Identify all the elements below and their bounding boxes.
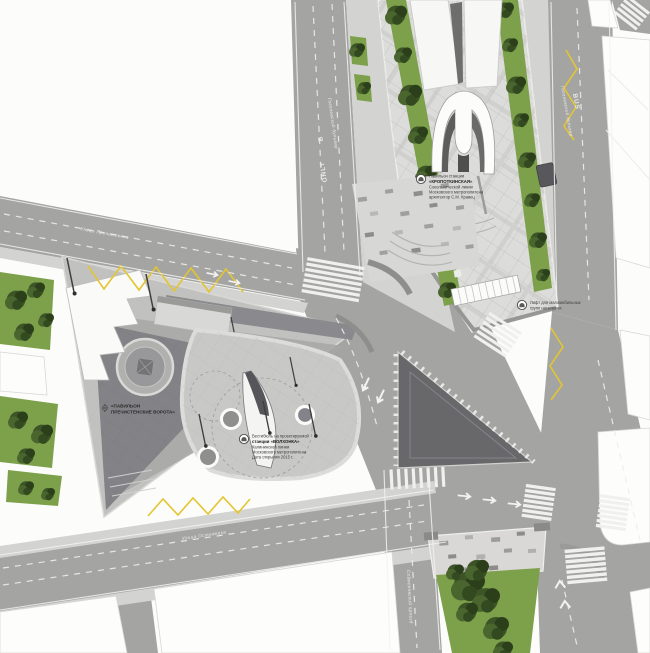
svg-text:Вестибюль на проектируемой: Вестибюль на проектируемой xyxy=(252,434,309,439)
svg-text:архитектор С.М. Кравец: архитектор С.М. Кравец xyxy=(429,195,475,200)
svg-text:Лифт для маломобильных: Лифт для маломобильных xyxy=(530,300,581,305)
svg-text:Павильон станции: Павильон станции xyxy=(429,174,464,179)
svg-text:ПРЕЧИСТЕНСКИЕ ВОРОТА»: ПРЕЧИСТЕНСКИЕ ВОРОТА» xyxy=(111,410,175,415)
metro-arch-icon xyxy=(416,174,425,183)
svg-text:«ПАВИЛЬОН: «ПАВИЛЬОН xyxy=(111,404,141,409)
fountain-ring xyxy=(222,410,241,429)
planter xyxy=(454,269,462,277)
building-left-mid xyxy=(0,352,47,395)
lawn xyxy=(6,470,62,506)
svg-text:Дата открытия 2015 г.: Дата открытия 2015 г. xyxy=(252,455,293,460)
monument-ring xyxy=(117,339,173,395)
svg-text:«КРОПОТКИНСКАЯ»: «КРОПОТКИНСКАЯ» xyxy=(429,179,473,184)
site-plan: BUS ONLY B Улица Пречистенка Улица Остож… xyxy=(0,0,650,653)
metro-arch-icon xyxy=(239,434,248,443)
lane-letter-text: B xyxy=(317,135,325,142)
roof-slab xyxy=(464,0,502,88)
svg-text:станции «ВОЛХОНКА»: станции «ВОЛХОНКА» xyxy=(252,439,300,444)
metro-arch-icon xyxy=(517,300,526,309)
svg-text:групп населения: групп населения xyxy=(530,306,562,311)
fountain-ring xyxy=(199,448,218,467)
